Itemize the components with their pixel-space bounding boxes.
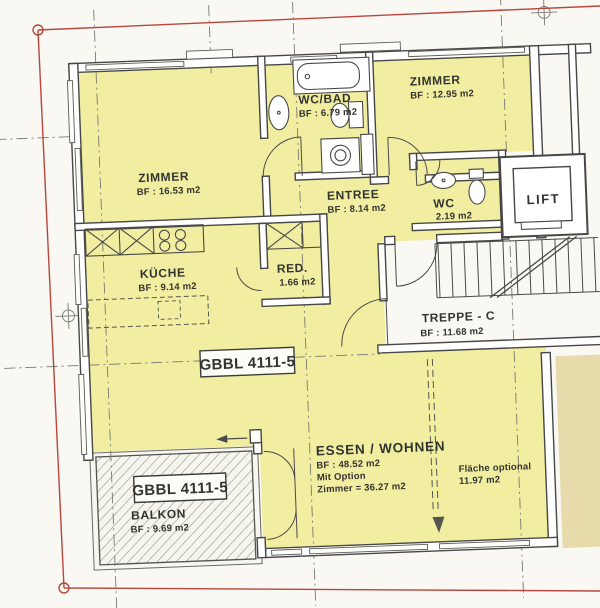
room-label-wc: WC: [433, 196, 455, 211]
tall-cabinet: [361, 134, 375, 174]
room-label-entree: ENTREE: [327, 187, 380, 203]
room-area-entree: BF : 8.14 m2: [327, 203, 386, 216]
neighbor-unit-area: [555, 354, 600, 548]
plan: ZIMMER BF : 12.95 m2 WC/BAD BF : 6.79 m2…: [0, 0, 600, 608]
floor-plan-svg: ZIMMER BF : 12.95 m2 WC/BAD BF : 6.79 m2…: [0, 0, 600, 608]
room-label-kueche: KÜCHE: [140, 264, 186, 281]
area-flaeche-optional: 11.97 m2: [459, 474, 501, 487]
room-option-line1: Mit Option: [317, 471, 366, 484]
room-label-lift: LIFT: [526, 191, 560, 207]
toilet: [468, 169, 485, 205]
room-label-treppe: TREPPE - C: [422, 309, 496, 326]
room-label-balkon: BALKON: [131, 507, 186, 523]
room-label-wc-bad: WC/BAD: [298, 91, 351, 107]
room-label-zimmer-left: ZIMMER: [138, 169, 189, 185]
room-area-balkon: BF : 9.69 m2: [130, 522, 189, 535]
room-area-kueche: BF : 9.14 m2: [138, 281, 197, 294]
room-label-zimmer-right: ZIMMER: [409, 73, 460, 89]
stairwell-zone: [382, 234, 600, 349]
room-label-red: RED.: [277, 261, 309, 276]
room-area-wc: 2.19 m2: [436, 210, 473, 222]
bathtub: [293, 57, 370, 94]
room-area-wc-bad: BF : 6.79 m2: [299, 107, 358, 120]
sink: [431, 172, 456, 189]
room-area-red: 1.66 m2: [279, 276, 316, 288]
washing-machine: [321, 138, 360, 173]
